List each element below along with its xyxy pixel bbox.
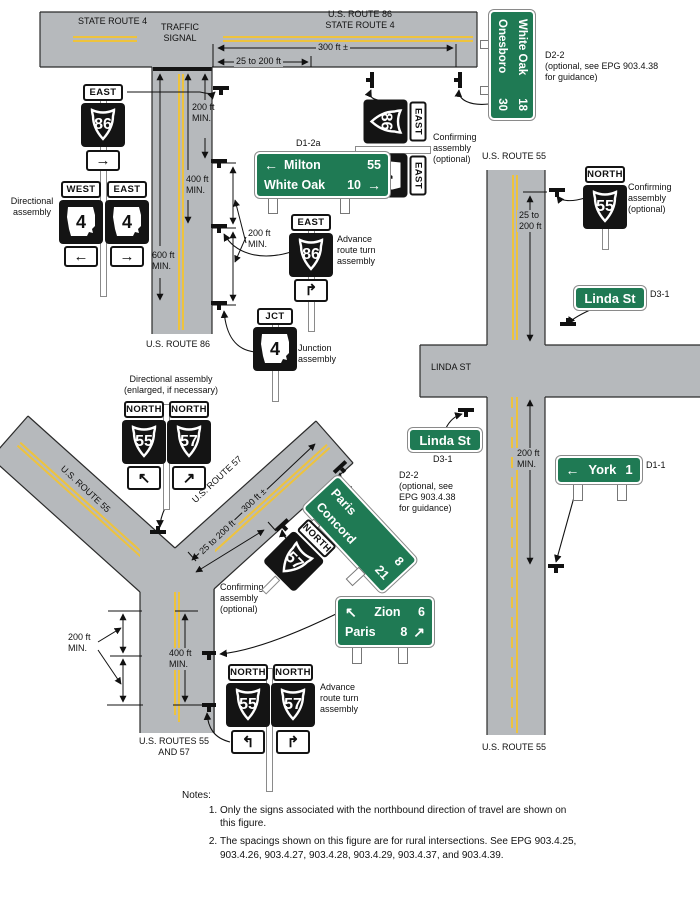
- centerline: [182, 74, 184, 330]
- dim-25-200ft-us55: 25 to 200 ft: [517, 210, 544, 232]
- turn-right-arrow-sign: ↱: [294, 279, 328, 302]
- guide-sign-whiteoak-onesboro: White Oak18 Onesboro30: [489, 10, 535, 120]
- us-86-shield: 86: [363, 99, 407, 143]
- us-86-shield: 86: [289, 233, 333, 277]
- centerline: [73, 40, 137, 42]
- road-label-us55-57: U.S. ROUTES 55 AND 57: [128, 736, 220, 758]
- note-item-2: The spacings shown on this figure are fo…: [220, 835, 580, 861]
- sign-leg: [398, 646, 408, 664]
- curve-left-arrow-icon: ↰: [242, 735, 255, 750]
- east-plaque: EAST: [107, 181, 147, 198]
- up-left-arrow-icon: ↖: [345, 602, 357, 622]
- left-arrow-icon: ←: [565, 460, 579, 480]
- mo-4-shield: 4: [59, 200, 103, 244]
- traffic-signal-label: TRAFFIC SIGNAL: [146, 22, 214, 44]
- confirming-assembly-label-us55: Confirming assembly (optional): [628, 182, 672, 215]
- left-arrow-icon: ←: [264, 155, 278, 175]
- up-left-arrow-sign: ↖: [127, 466, 161, 490]
- guide-sign-york: ←York1: [556, 456, 642, 484]
- code-d3-1-a: D3-1: [650, 289, 670, 300]
- north-plaque: NORTH: [228, 664, 268, 681]
- east-plaque: EAST: [83, 84, 123, 101]
- up-left-arrow-icon: ↖: [138, 471, 151, 486]
- curve-right-arrow-sign: ↱: [276, 730, 310, 754]
- us-55-shield: 55: [122, 420, 166, 464]
- dim-25-200ft: 25 to 200 ft: [234, 56, 283, 67]
- code-d2-2-paris: D2-2 (optional, see EPG 903.4.38 for gui…: [399, 470, 456, 514]
- centerline: [73, 36, 137, 38]
- directional-assembly-label: Directional assembly: [4, 196, 60, 218]
- advance-assembly-label-2: Advance route turn assembly: [320, 682, 359, 715]
- confirming-assembly-label-top: Confirming assembly (optional): [433, 132, 477, 165]
- curve-left-arrow-sign: ↰: [231, 730, 265, 754]
- curve-right-arrow-icon: ↱: [287, 735, 300, 750]
- sign-leg: [268, 196, 278, 214]
- code-d3-1-b: D3-1: [433, 454, 453, 465]
- turn-right-arrow-icon: ↱: [305, 283, 318, 298]
- centerline: [516, 175, 518, 340]
- road-label-sr4: STATE ROUTE 4: [78, 16, 147, 27]
- road-label-linda-st: LINDA ST: [431, 362, 471, 373]
- north-plaque: NORTH: [169, 401, 209, 418]
- jct-plaque: JCT: [257, 308, 293, 325]
- east-plaque: EAST: [409, 101, 426, 141]
- notes-title: Notes:: [182, 790, 211, 802]
- road-label-us86: U.S. ROUTE 86: [146, 339, 210, 350]
- centerline: [512, 175, 514, 340]
- sign-leg: [573, 483, 583, 501]
- road-label-us55-bottom: U.S. ROUTE 55: [482, 742, 546, 753]
- figure-canvas: STATE ROUTE 4 TRAFFIC SIGNAL U.S. ROUTE …: [0, 0, 700, 906]
- sign-post: [261, 575, 280, 594]
- street-sign-linda-1: Linda St: [574, 286, 646, 310]
- east-plaque: EAST: [291, 214, 331, 231]
- up-right-arrow-sign: ↗: [172, 466, 206, 490]
- road-label-us86-sr4: U.S. ROUTE 86 STATE ROUTE 4: [296, 9, 424, 31]
- guide-sign-zion-paris: ↖Zion6 Paris8↗: [336, 597, 434, 647]
- dim-400ft-min-stem: 400 ft MIN.: [167, 648, 194, 670]
- sign-leg: [352, 646, 362, 664]
- code-d2-2-top: D2-2 (optional, see EPG 903.4.38 for gui…: [545, 50, 658, 83]
- guide-sign-milton-whiteoak: ←Milton55 White Oak10→: [255, 152, 390, 198]
- sign-leg: [346, 567, 366, 587]
- us-86-shield: 86: [81, 103, 125, 147]
- stop-line: [153, 67, 212, 71]
- east-plaque: EAST: [409, 155, 426, 195]
- directional-enlarged-label: Directional assembly (enlarged, if neces…: [112, 374, 230, 396]
- us-57-shield: 57: [167, 420, 211, 464]
- right-arrow-sign: →: [110, 246, 144, 267]
- dim-300ft: 300 ft ±: [316, 42, 350, 53]
- rotated-86-east-unit: EAST 86: [363, 99, 426, 143]
- notes-list: Only the signs associated with the north…: [198, 804, 580, 867]
- sign-leg: [617, 483, 627, 501]
- centerline: [178, 74, 180, 330]
- up-right-arrow-icon: ↗: [183, 471, 196, 486]
- code-d1-2a: D1-2a: [296, 138, 321, 149]
- mo-4-shield: 4: [105, 200, 149, 244]
- left-arrow-sign: ←: [64, 246, 98, 267]
- street-sign-linda-2: Linda St: [408, 428, 482, 452]
- up-right-arrow-icon: ↗: [413, 622, 425, 642]
- centerline-dashed: [511, 397, 513, 733]
- dim-200ft-min: 200 ft MIN.: [192, 102, 215, 124]
- north-plaque: NORTH: [124, 401, 164, 418]
- code-d1-1: D1-1: [646, 460, 666, 471]
- confirming-assembly-label-us57: Confirming assembly (optional): [220, 582, 264, 615]
- note-item-1: Only the signs associated with the north…: [220, 804, 580, 830]
- mo-4-shield: 4: [253, 327, 297, 371]
- us-55-shield: 55: [583, 185, 627, 229]
- dim-400ft-min: 400 ft MIN.: [186, 174, 209, 196]
- right-arrow-icon: →: [120, 249, 135, 264]
- us-55-shield: 55: [226, 683, 270, 727]
- centerline: [223, 36, 473, 38]
- right-arrow-icon: →: [96, 153, 111, 168]
- north-plaque: NORTH: [273, 664, 313, 681]
- junction-assembly-label: Junction assembly: [298, 343, 336, 365]
- dim-200ft-min-stem: 200 ft MIN.: [68, 632, 91, 654]
- right-arrow-sign: →: [86, 150, 120, 171]
- dim-200ft-min-us55: 200 ft MIN.: [515, 448, 542, 470]
- sign-post: [602, 228, 609, 250]
- right-arrow-icon: →: [367, 175, 381, 195]
- west-plaque: WEST: [61, 181, 101, 198]
- road-label-us55-top: U.S. ROUTE 55: [482, 151, 546, 162]
- advance-assembly-label: Advance route turn assembly: [337, 234, 376, 267]
- north-plaque: NORTH: [585, 166, 625, 183]
- sign-leg: [340, 196, 350, 214]
- dim-600ft-min: 600 ft MIN.: [152, 250, 175, 272]
- rotated-d2-2-sign: White Oak18 Onesboro30: [489, 10, 535, 120]
- left-arrow-icon: ←: [74, 249, 89, 264]
- dim-200ft-min-spacing: 200 ft MIN.: [248, 228, 271, 250]
- us-57-shield: 57: [271, 683, 315, 727]
